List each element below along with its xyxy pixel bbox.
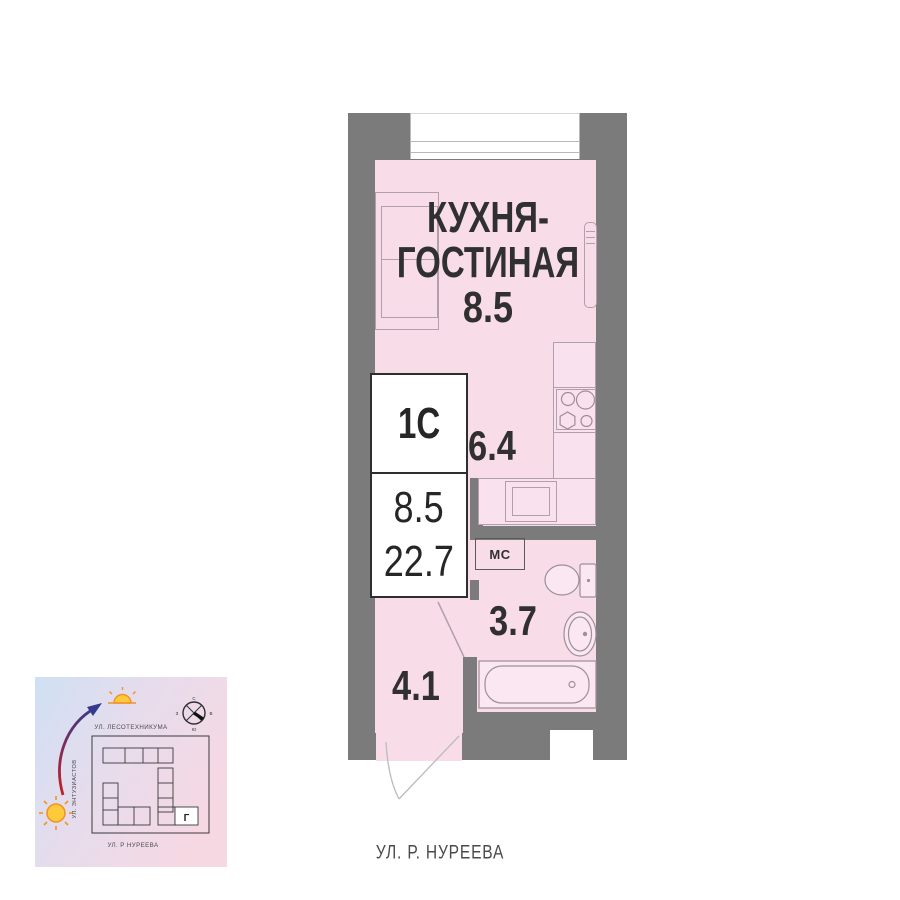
room-title-line1: КУХНЯ-: [407, 196, 570, 240]
counter-divider: [553, 387, 596, 388]
wall-bath-left: [463, 657, 477, 712]
building-label: Г: [184, 813, 190, 824]
inset-street-left: УЛ. ЭНТУЗИАСТОВ: [72, 759, 78, 818]
area-kitchen-value: 6.4: [468, 425, 516, 467]
floor-plan-page: МС: [0, 0, 900, 900]
compass-west-label: З: [176, 711, 179, 716]
street-caption-text: УЛ. Р. НУРЕЕВА: [376, 844, 504, 863]
room-title-line2: ГОСТИНАЯ: [367, 241, 610, 285]
room-title-text1: КУХНЯ-: [427, 196, 549, 240]
entrance-door-opening: [376, 733, 462, 761]
living-area-value: 8.5: [394, 483, 444, 533]
inset-street-top: УЛ. ЛЕСОТЕХНИКУМА: [94, 724, 168, 731]
wall-bottom-bath: [463, 712, 627, 760]
area-kitchen-living: 8.5: [457, 286, 518, 330]
location-inset-map: С В Ю З: [35, 677, 227, 867]
areas-cell: 8.5 22.7: [372, 474, 466, 596]
area-bathroom-value: 3.7: [489, 600, 537, 642]
room-title-text2: ГОСТИНАЯ: [397, 241, 579, 285]
unit-type-value: 1С: [398, 399, 440, 449]
area-hallway: 4.1: [387, 665, 445, 707]
radiator-tick: [586, 231, 595, 232]
washing-machine-box: МС: [475, 538, 525, 570]
apartment-info-card: 1С 8.5 22.7: [370, 373, 468, 598]
window-frame-line: [411, 141, 579, 142]
wall-bath-stub: [470, 580, 479, 600]
street-caption: УЛ. Р. НУРЕЕВА: [362, 844, 519, 863]
inset-background: [35, 677, 227, 867]
washing-machine-label: МС: [489, 547, 510, 562]
area-bathroom: 3.7: [484, 600, 542, 642]
counter-divider: [553, 432, 596, 433]
total-area-value: 22.7: [384, 537, 454, 587]
window-living-room: [410, 113, 580, 159]
compass-east-label: В: [209, 711, 212, 716]
window-frame-line: [411, 152, 579, 153]
radiator-tick: [586, 237, 595, 238]
area-kitchen-living-value: 8.5: [463, 286, 513, 330]
stove-icon: [556, 389, 596, 430]
unit-type-cell: 1С: [372, 375, 466, 474]
area-hallway-value: 4.1: [392, 665, 440, 707]
kitchen-sink-basin: [512, 487, 550, 516]
wall-gap-bottom-right: [550, 730, 593, 761]
area-kitchen: 6.4: [463, 425, 521, 467]
wall-right: [596, 113, 627, 760]
inset-street-bottom: УЛ. Р НУРЕЕВА: [107, 842, 159, 849]
compass-south-label: Ю: [192, 727, 197, 732]
